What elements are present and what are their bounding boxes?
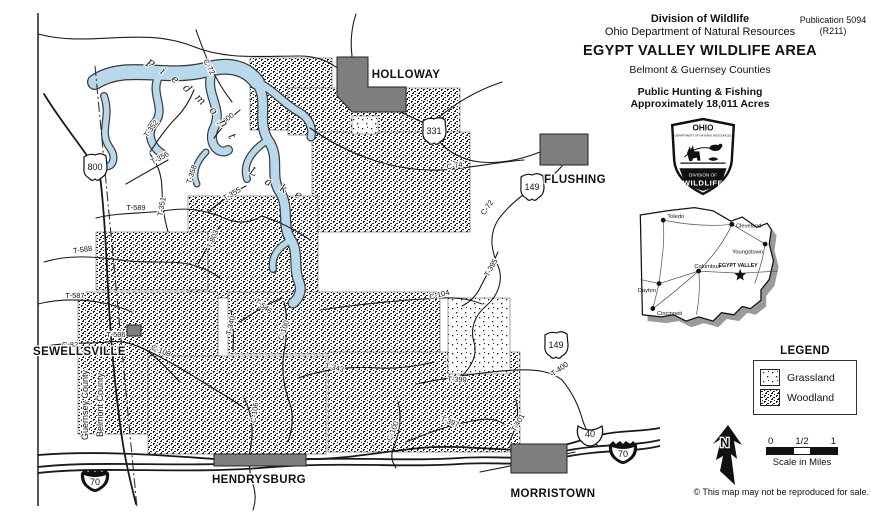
inset-city-label: Columbus xyxy=(694,264,720,270)
lake-name-letter: m xyxy=(192,91,209,108)
town-label: SEWELLSVILLE xyxy=(33,346,126,358)
county-name-label: Belmont County xyxy=(95,372,105,437)
map-publication-page: 800331149149407070 C-72T-600T-352T-356T-… xyxy=(0,0,871,517)
road-label: T-587 xyxy=(65,291,84,300)
hunting-fishing-info: Public Hunting & Fishing Approximately 1… xyxy=(545,86,855,110)
interstate-route-shield: 70 xyxy=(609,441,637,464)
town-label: FLUSHING xyxy=(544,174,606,186)
inset-city-dot xyxy=(729,222,734,227)
road-label: C-72 xyxy=(479,198,496,216)
badge-wildlife-label: WILDLIFE xyxy=(683,179,723,188)
town-label: HENDRYSBURG xyxy=(212,474,306,486)
grassland-swatch-icon xyxy=(760,369,780,386)
us-route-shield: 40 xyxy=(577,426,602,446)
road-label: T-400 xyxy=(549,360,570,378)
copyright-notice: © This map may not be reproduced for sal… xyxy=(635,487,869,497)
badge-division-label: DIVISION OF xyxy=(689,173,717,178)
ohio-route-shield: 149 xyxy=(545,332,568,359)
page-title: EGYPT VALLEY WILDLIFE AREA xyxy=(545,43,855,59)
route-number: 70 xyxy=(90,477,100,487)
badge-department-label: DEPARTMENT OF NATURAL RESOURCES xyxy=(675,133,732,137)
scale-bar-graphic xyxy=(766,447,838,455)
scale-units-label: Scale in Miles xyxy=(762,457,842,468)
north-arrow-icon: N xyxy=(710,423,746,487)
town-area-holloway xyxy=(337,57,406,112)
route-number: 40 xyxy=(585,429,595,439)
route-number: 331 xyxy=(426,126,441,136)
inset-city-dot xyxy=(763,242,768,247)
inset-city-label: Dayton xyxy=(638,288,656,294)
inset-star-label: EGYPT VALLEY xyxy=(719,263,759,269)
inset-city-dot xyxy=(657,281,662,286)
road-label: T-351 xyxy=(155,196,167,216)
county-name-label: Guernsey County xyxy=(80,369,90,440)
inset-city-label: Cincinnati xyxy=(657,311,682,317)
ohio-route-shield: 331 xyxy=(423,118,446,145)
scale-ticks: 0 1/2 1 xyxy=(762,436,842,447)
road-label: T-588 xyxy=(73,244,93,256)
route-number: 800 xyxy=(87,162,102,172)
legend: LEGEND Grassland Woodland xyxy=(753,345,857,415)
road-label: T-395 xyxy=(482,257,499,278)
road-label: T-589 xyxy=(126,203,145,212)
road-label: T-356 xyxy=(149,149,170,166)
interstate-route-shield: 70 xyxy=(81,469,109,492)
ohio-route-shield: 800 xyxy=(84,154,107,181)
ohio-locator-inset-map: ToledoClevelandYoungstownColumbusDaytonC… xyxy=(632,198,788,338)
inset-city-dot xyxy=(650,306,655,311)
town-label: MORRISTOWN xyxy=(511,488,596,500)
inset-city-label: Cleveland xyxy=(736,223,761,229)
scale-bar: 0 1/2 1 Scale in Miles xyxy=(762,436,842,468)
ohio-route-shield: 149 xyxy=(521,174,544,201)
town-area-hendrysburg xyxy=(214,454,306,466)
legend-item-woodland: Woodland xyxy=(760,389,850,406)
route-number: 70 xyxy=(618,449,628,459)
road-label: T-586 xyxy=(106,330,125,339)
badge-state-label: OHIO xyxy=(693,123,715,132)
wildlife-area-map: 800331149149407070 C-72T-600T-352T-356T-… xyxy=(0,0,660,517)
inset-city-label: Youngstown xyxy=(732,249,763,255)
route-number: 149 xyxy=(548,340,563,350)
woodland-swatch-icon xyxy=(760,389,780,406)
town-label: HOLLOWAY xyxy=(372,69,441,81)
inset-city-dot xyxy=(661,218,666,223)
division-of-wildlife-badge: OHIO DEPARTMENT OF NATURAL RESOURCES DIV… xyxy=(670,118,736,196)
route-number: 149 xyxy=(524,182,539,192)
lake-name-letter: t xyxy=(225,131,239,142)
legend-item-grassland: Grassland xyxy=(760,369,850,386)
legend-title: LEGEND xyxy=(753,345,857,357)
legend-box: Grassland Woodland xyxy=(753,360,857,415)
publication-number: Publication 5094 (R211) xyxy=(797,15,869,37)
town-area-sewellsville xyxy=(127,325,141,336)
road-label: T-399 xyxy=(447,375,466,385)
svg-text:N: N xyxy=(720,435,729,450)
counties-subtitle: Belmont & Guernsey Counties xyxy=(545,64,855,76)
inset-city-label: Toledo xyxy=(667,214,684,220)
town-area-flushing xyxy=(540,134,588,165)
town-area-morristown xyxy=(511,444,567,473)
